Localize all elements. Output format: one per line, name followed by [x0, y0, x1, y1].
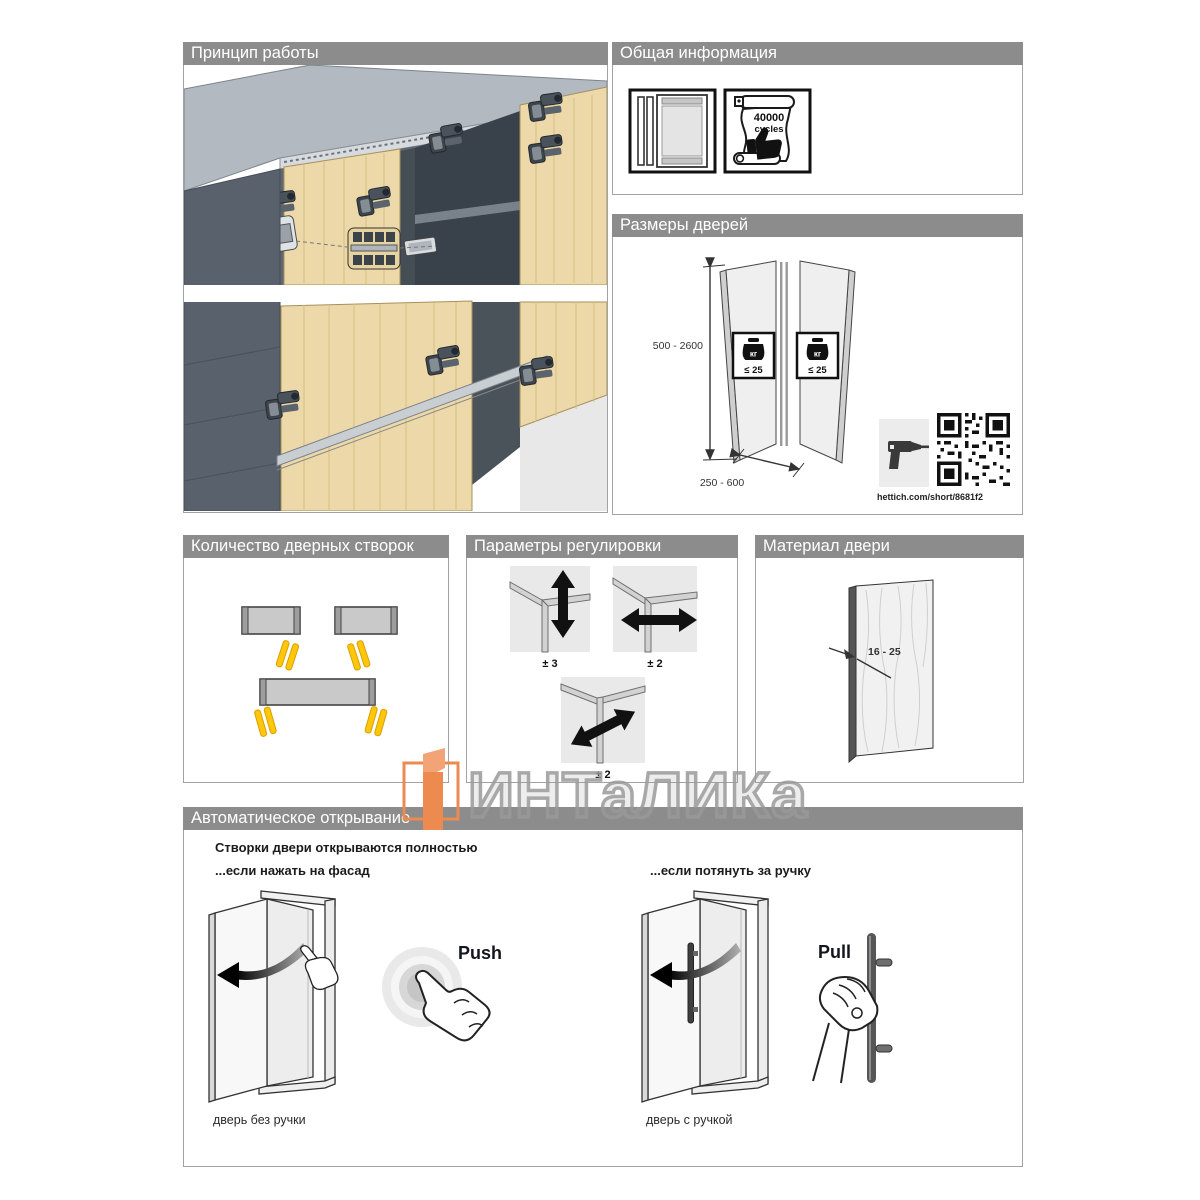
- two-leaf-doors: [242, 607, 397, 671]
- panel-title: Принцип работы: [191, 44, 319, 62]
- cycles-scroll-icon: 40000 cycles: [725, 90, 810, 172]
- weight-badge-right: кг ≤ 25: [797, 333, 838, 378]
- svg-text:≤ 25: ≤ 25: [808, 365, 827, 376]
- panel-working-principle-header: Принцип работы: [183, 42, 608, 65]
- thickness-range-label: 16 - 25: [868, 646, 901, 658]
- width-dimension-line: [740, 455, 799, 469]
- weight-limit: ≤ 25: [744, 365, 763, 376]
- adjust-horizontal: [613, 566, 697, 652]
- adjust-vertical-label: ± 3: [542, 658, 557, 670]
- pull-door-illustration: [638, 887, 790, 1107]
- panel-door-material: Материал двери 16 - 25: [755, 535, 1024, 783]
- panel-general-info-body: 40000 cycles: [612, 65, 1023, 195]
- push-condition: ...если нажать на фасад: [215, 863, 370, 878]
- adjustment-diagram: ± 3 ± 2 ± 2: [467, 558, 737, 782]
- watermark-brand: ИНТаЛИКа: [468, 758, 808, 832]
- panel-door-sizes-header: Размеры дверей: [612, 214, 1023, 237]
- panel-title: Автоматическое открывание: [191, 809, 410, 827]
- panel-adjustment: Параметры регулировки ± 3 ± 2: [466, 535, 738, 783]
- panel-general-info: Общая информация 400: [612, 42, 1023, 195]
- qr-link-text: hettich.com/short/8681f2: [877, 492, 983, 502]
- weight-badge-left: кг ≤ 25: [733, 333, 774, 378]
- height-range-label: 500 - 2600: [653, 340, 703, 352]
- wide-door: [254, 679, 387, 737]
- panel-title: Параметры регулировки: [474, 537, 661, 555]
- width-range-label: 250 - 600: [700, 477, 745, 489]
- panel-auto-opening: Автоматическое открывание Створки двери …: [183, 807, 1023, 1167]
- panel-adjustment-header: Параметры регулировки: [466, 535, 738, 558]
- pull-label: Pull: [818, 942, 851, 963]
- door-material-diagram: 16 - 25: [756, 558, 1023, 782]
- mounting-plate: [348, 228, 400, 269]
- panel-auto-opening-body: Створки двери открываются полностью ...е…: [183, 830, 1023, 1167]
- weight-unit: кг: [750, 350, 758, 359]
- panel-adjustment-body: ± 3 ± 2 ± 2: [466, 558, 738, 783]
- adjust-horizontal-label: ± 2: [647, 658, 662, 670]
- svg-text:кг: кг: [814, 350, 822, 359]
- door-left-bottom: [281, 301, 472, 511]
- cabinet-illustration: [184, 65, 607, 511]
- panel-title: Количество дверных створок: [191, 537, 414, 555]
- panel-title: Общая информация: [620, 44, 777, 62]
- panel-working-principle-body: [183, 65, 608, 513]
- door-sizes-diagram: 500 - 2600 250 - 600 кг ≤ 25 кг ≤ 25: [613, 237, 1022, 513]
- watermark-logo: [399, 744, 463, 836]
- auto-opening-headline: Створки двери открываются полностью: [215, 840, 477, 855]
- panel-door-sizes: Размеры дверей 500 - 2600 250: [612, 214, 1023, 515]
- folding-door-icon: [630, 90, 715, 172]
- panel-working-principle: Принцип работы: [183, 42, 608, 513]
- pull-caption: дверь с ручкой: [646, 1113, 733, 1127]
- adjust-depth: [561, 677, 645, 763]
- push-door-illustration: [205, 887, 357, 1107]
- pull-condition: ...если потянуть за ручку: [650, 863, 811, 878]
- qr-code: [937, 413, 1010, 486]
- panel-door-sizes-body: 500 - 2600 250 - 600 кг ≤ 25 кг ≤ 25: [612, 237, 1023, 515]
- adjust-vertical: [510, 566, 590, 652]
- panel-leaf-count-header: Количество дверных створок: [183, 535, 449, 558]
- panel-title: Размеры дверей: [620, 216, 748, 234]
- panel-door-material-body: 16 - 25: [755, 558, 1024, 783]
- panel-general-info-header: Общая информация: [612, 42, 1023, 65]
- push-label: Push: [458, 943, 502, 964]
- cycles-unit: cycles: [754, 124, 783, 135]
- push-caption: дверь без ручки: [213, 1113, 306, 1127]
- drill-icon: [879, 419, 929, 487]
- pull-gesture-icon: [795, 929, 915, 1089]
- panel-title: Материал двери: [763, 537, 890, 555]
- cabinet-side: [184, 169, 280, 511]
- cycles-value: 40000: [754, 112, 785, 124]
- panel-door-material-header: Материал двери: [755, 535, 1024, 558]
- general-info-icons: 40000 cycles: [613, 65, 1022, 193]
